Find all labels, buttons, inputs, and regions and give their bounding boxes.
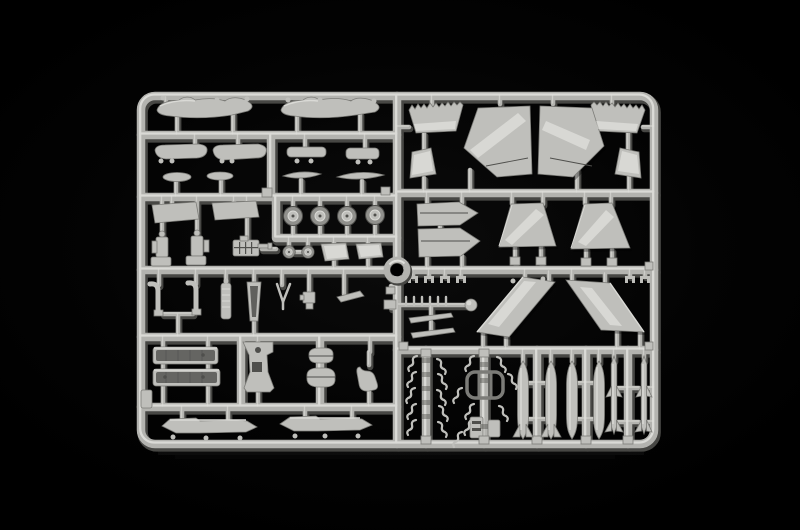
flat-part-1 (287, 147, 326, 157)
curved-duct (357, 367, 378, 391)
fin-foot (607, 258, 617, 266)
chevron-panel-2 (418, 228, 480, 257)
store-half-1 (155, 144, 207, 159)
canopy-strip-2 (337, 172, 384, 179)
small-blade-1 (163, 173, 191, 182)
nose-wheel-1 (283, 246, 296, 259)
drop-tank-4 (594, 361, 605, 439)
rail-nub-2 (384, 300, 396, 309)
oval-part-1 (309, 348, 333, 363)
box-part-2 (488, 420, 500, 437)
small-blade-2 (207, 172, 233, 180)
ejection-seat-2 (186, 230, 209, 265)
fin-foot (510, 257, 520, 265)
tilted-blade (337, 291, 364, 302)
fin-foot (581, 258, 591, 266)
dome-part (465, 299, 477, 311)
missile-2 (541, 361, 561, 439)
ejection-seat-1 (151, 231, 171, 266)
main-wheel-3 (338, 207, 357, 226)
flat-part-2 (346, 148, 379, 159)
main-wheel-1 (284, 207, 303, 226)
chevron-panel-1 (417, 202, 478, 226)
nose-wheel-2 (302, 246, 315, 259)
canopy-strip-1 (283, 172, 321, 178)
sprue-photo (0, 0, 800, 530)
access-panel-1 (152, 202, 199, 223)
avionics-box (300, 292, 315, 309)
rail-nub-1 (386, 287, 395, 294)
photo-stage: Light grey injection-moulded plastic mod… (0, 0, 800, 530)
fin-foot (536, 257, 546, 265)
drop-tank-3 (567, 361, 578, 439)
access-panel-2 (212, 201, 259, 220)
center-ring (387, 260, 409, 282)
main-wheel-2 (311, 207, 330, 226)
main-wheel-4 (366, 206, 385, 225)
missile-1 (513, 361, 533, 439)
oval-part-2 (307, 368, 335, 387)
store-half-2 (213, 144, 266, 160)
